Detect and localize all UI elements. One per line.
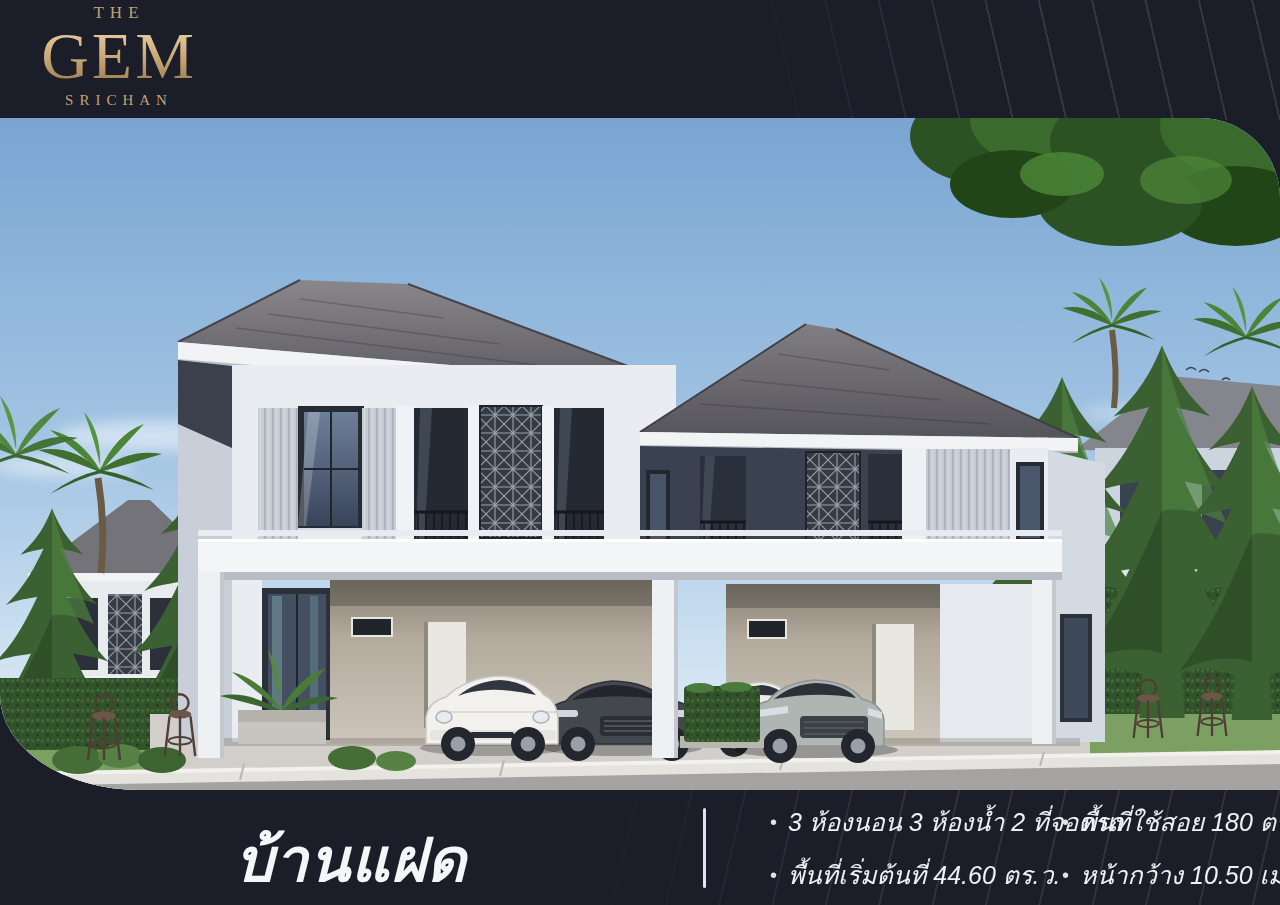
hedge-box-center (680, 682, 764, 748)
spec-item-frontage: • หน้ากว้าง 10.50 เมตร (1062, 859, 1280, 891)
bullet-icon: • (770, 812, 777, 832)
siding-panel (258, 408, 298, 542)
spec-item-land-area: • พื้นที่เริ่มต้นที่ 44.60 ตร.ว. (770, 859, 1070, 891)
vent-window (352, 618, 392, 636)
spec-text: พื้นที่เริ่มต้นที่ 44.60 ตร.ว. (788, 855, 1060, 895)
logo-gem: GEM (34, 23, 204, 89)
spec-text: พื้นที่ใช้สอย 180 ตร.ม. (1080, 802, 1280, 842)
spec-item-rooms: • 3 ห้องนอน 3 ห้องน้ำ 2 ที่จอดรถ (770, 806, 1070, 838)
bullet-icon: • (1062, 865, 1069, 885)
balcony-door-left-1 (414, 408, 468, 542)
spec-text: หน้ากว้าง 10.50 เมตร (1080, 855, 1280, 895)
bullet-icon: • (1062, 812, 1069, 832)
spec-column-2: • พื้นที่ใช้สอย 180 ตร.ม. • หน้ากว้าง 10… (1062, 806, 1280, 891)
hero-photo (0, 118, 1280, 790)
lattice-panel-left (480, 406, 542, 538)
house-type-title: บ้านแฝด (0, 812, 702, 905)
window-upper-left (298, 406, 364, 534)
divider-line (703, 808, 706, 888)
poster-page: THE GEM SRICHAN (0, 0, 1280, 905)
spec-item-usable-area: • พื้นที่ใช้สอย 180 ตร.ม. (1062, 806, 1280, 838)
upper-facade-left (232, 365, 676, 544)
bullet-icon: • (770, 865, 777, 885)
siding-panel (362, 408, 396, 542)
side-wall-right (1048, 450, 1105, 742)
logo-srichan: SRICHAN (34, 93, 204, 108)
balcony-door-left-2 (554, 408, 604, 542)
spec-column-1: • 3 ห้องนอน 3 ห้องน้ำ 2 ที่จอดรถ • พื้นท… (770, 806, 1070, 891)
brand-logo: THE GEM SRICHAN (34, 4, 204, 108)
vent-window (748, 620, 786, 638)
house-render-scene (0, 118, 1280, 790)
